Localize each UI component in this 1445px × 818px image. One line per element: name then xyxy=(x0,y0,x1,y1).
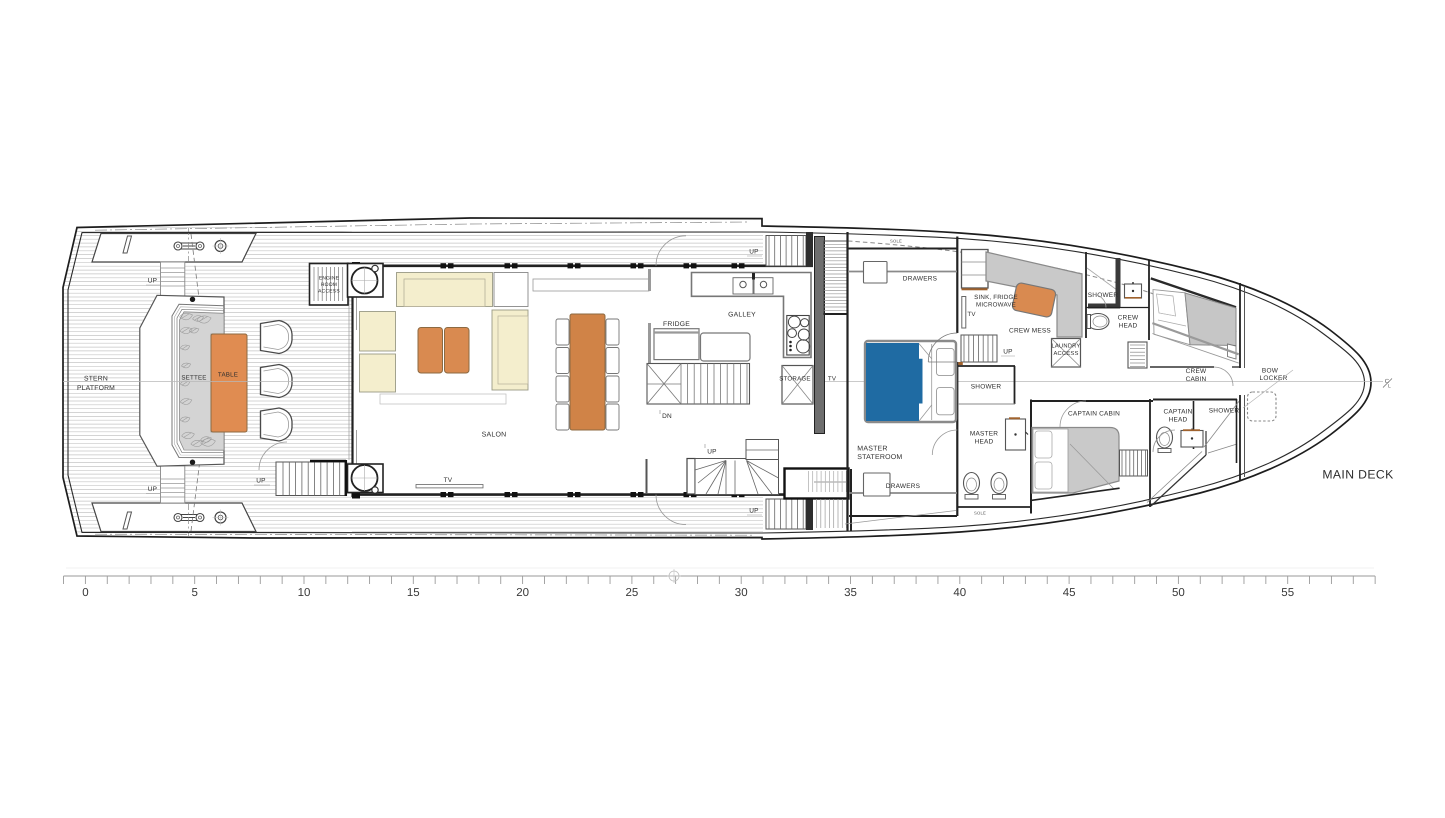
svg-text:UP: UP xyxy=(707,449,716,456)
svg-text:55: 55 xyxy=(1281,587,1294,599)
svg-text:UP: UP xyxy=(256,478,265,485)
svg-text:LAUNDRY: LAUNDRY xyxy=(1052,344,1081,350)
svg-text:HEAD: HEAD xyxy=(975,439,994,446)
svg-text:SHOWER: SHOWER xyxy=(1088,292,1119,299)
svg-text:SHOWER: SHOWER xyxy=(971,384,1002,391)
svg-text:SHOWER: SHOWER xyxy=(1209,408,1240,415)
svg-text:UP: UP xyxy=(148,278,157,285)
svg-text:BOW: BOW xyxy=(1262,368,1279,375)
svg-text:TV: TV xyxy=(444,477,453,484)
svg-text:STORAGE: STORAGE xyxy=(779,376,811,383)
svg-text:CREW MESS: CREW MESS xyxy=(1009,328,1051,335)
svg-text:MASTER: MASTER xyxy=(970,431,998,438)
svg-text:15: 15 xyxy=(407,587,420,599)
svg-text:25: 25 xyxy=(626,587,639,599)
svg-text:PLATFORM: PLATFORM xyxy=(77,385,115,392)
svg-text:HEAD: HEAD xyxy=(1119,323,1138,330)
svg-text:CREW: CREW xyxy=(1118,315,1139,322)
svg-text:MASTER: MASTER xyxy=(857,446,887,453)
svg-text:MICROWAVE: MICROWAVE xyxy=(976,302,1016,309)
svg-text:DRAWERS: DRAWERS xyxy=(903,276,938,283)
svg-text:CREW: CREW xyxy=(1186,368,1207,375)
svg-text:TV: TV xyxy=(828,376,837,383)
svg-text:CAPTAIN CABIN: CAPTAIN CABIN xyxy=(1068,411,1120,418)
svg-text:5: 5 xyxy=(191,587,197,599)
svg-text:STERN: STERN xyxy=(84,376,108,383)
svg-text:SINK, FRIDGE: SINK, FRIDGE xyxy=(974,294,1018,301)
svg-text:0: 0 xyxy=(82,587,88,599)
svg-text:ROOM: ROOM xyxy=(321,282,337,288)
svg-text:SETTEE: SETTEE xyxy=(181,375,206,382)
svg-text:LOCKER: LOCKER xyxy=(1260,375,1288,382)
svg-text:SALON: SALON xyxy=(482,432,507,439)
svg-text:FRIDGE: FRIDGE xyxy=(663,321,690,328)
svg-text:SOLE: SOLE xyxy=(890,239,902,244)
svg-text:50: 50 xyxy=(1172,587,1185,599)
svg-text:L: L xyxy=(1388,384,1391,390)
svg-text:DN: DN xyxy=(662,413,672,420)
svg-text:45: 45 xyxy=(1063,587,1076,599)
svg-text:SOLE: SOLE xyxy=(974,511,986,516)
svg-text:UP: UP xyxy=(1003,349,1012,356)
svg-text:GALLEY: GALLEY xyxy=(728,312,756,319)
svg-text:CAPTAIN: CAPTAIN xyxy=(1163,409,1192,416)
svg-text:STATEROOM: STATEROOM xyxy=(857,454,902,461)
svg-text:UP: UP xyxy=(148,486,157,493)
svg-text:20: 20 xyxy=(516,587,529,599)
svg-text:TABLE: TABLE xyxy=(218,372,238,379)
svg-text:30: 30 xyxy=(735,587,748,599)
svg-text:HEAD: HEAD xyxy=(1169,417,1188,424)
svg-text:ENGINE: ENGINE xyxy=(319,276,340,282)
svg-text:35: 35 xyxy=(844,587,857,599)
svg-text:CABIN: CABIN xyxy=(1186,376,1207,383)
svg-text:TV: TV xyxy=(967,311,976,318)
svg-text:MAIN DECK: MAIN DECK xyxy=(1322,468,1393,482)
svg-text:UP: UP xyxy=(749,249,758,256)
svg-text:UP: UP xyxy=(749,508,758,515)
svg-text:ACCESS: ACCESS xyxy=(318,289,340,295)
svg-text:10: 10 xyxy=(298,587,311,599)
svg-text:40: 40 xyxy=(953,587,966,599)
svg-text:DRAWERS: DRAWERS xyxy=(886,483,921,490)
svg-text:ACCESS: ACCESS xyxy=(1053,350,1078,357)
